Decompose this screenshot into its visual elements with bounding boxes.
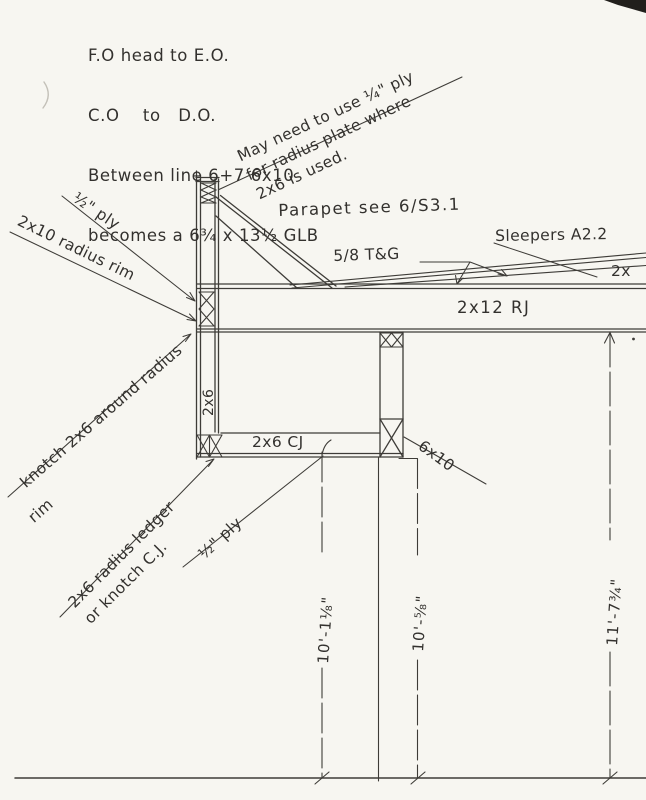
- callout-deck-2x: 2x: [611, 261, 631, 281]
- drawing-sheet: F.O head to E.O. C.O to D.O. Between lin…: [0, 0, 646, 800]
- post-6x10-lines: [379, 332, 404, 781]
- roof-deck-lines: [197, 284, 646, 332]
- general-note-line-1: F.O head to E.O.: [88, 46, 319, 66]
- dimension-middle: 10'-⅝": [408, 594, 432, 653]
- callout-ceiling-joist: 2x6 CJ: [252, 432, 304, 452]
- callout-stud-2x6: 2x6: [199, 389, 219, 416]
- page-corner-shadow: [604, 0, 646, 13]
- blocking-hatch-rim: [199, 292, 214, 326]
- callout-sleepers-ref: Sleepers A2.2: [495, 224, 608, 246]
- general-note-line-2: C.O to D.O.: [88, 106, 319, 126]
- pencil-smudge: [43, 82, 48, 108]
- general-note-line-4: becomes a 6¾ x 13½ GLB: [88, 226, 319, 246]
- callout-tongue-groove: 5/8 T&G: [333, 244, 400, 266]
- callout-roof-joist: 2x12 RJ: [457, 298, 530, 318]
